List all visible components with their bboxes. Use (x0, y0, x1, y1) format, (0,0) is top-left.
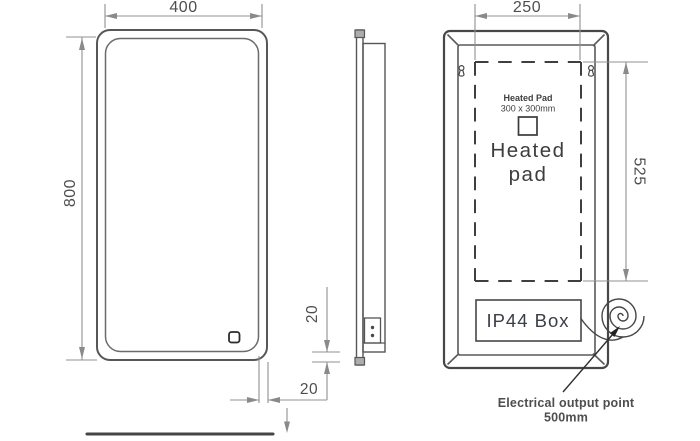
keyhole-hanger-icon (459, 66, 464, 77)
back-width-label: 250 (513, 0, 541, 16)
arrowhead-icon (268, 397, 280, 403)
front-view (97, 30, 267, 360)
arrowhead-icon (79, 347, 85, 359)
side-junction-box (365, 318, 381, 343)
side-bottom-cap (355, 358, 365, 366)
arrowhead-icon (247, 397, 259, 403)
pad-note-size: 300 x 300mm (501, 104, 556, 114)
screw-icon (371, 334, 374, 337)
arrowhead-icon (623, 269, 629, 281)
side-top-cap (355, 30, 365, 38)
arrowhead-icon (568, 13, 580, 19)
front-height-label: 800 (62, 179, 79, 207)
front-width-label: 400 (169, 0, 197, 16)
drawing-canvas: 400 800 20 20 (0, 0, 700, 441)
arrowhead-icon (324, 362, 330, 374)
leader-line (563, 334, 613, 392)
electrical-note-line2: 500mm (544, 411, 588, 425)
inset-bottom-label: 20 (300, 381, 318, 398)
electrical-note-line1: Electrical output point (498, 396, 635, 410)
arrowhead-icon (324, 340, 330, 352)
arrowhead-icon (250, 13, 262, 19)
front-led-border (106, 39, 259, 352)
heated-pad-word-top: Heated (490, 139, 565, 162)
screw-icon (371, 326, 374, 329)
arrowhead-icon (105, 13, 117, 19)
side-mirror-panel (357, 30, 364, 365)
inset-right-label: 20 (304, 305, 321, 323)
back-inner-frame (458, 45, 595, 355)
corner-chamfer (593, 35, 605, 47)
pad-sensor-square (519, 117, 538, 135)
touch-sensor-icon (229, 332, 240, 343)
arrowhead-icon (79, 38, 85, 50)
side-back-cabinet (363, 44, 385, 353)
pad-note-title: Heated Pad (503, 93, 552, 103)
bottom-pointer (87, 408, 290, 434)
corner-chamfer (448, 35, 460, 47)
corner-chamfer (448, 354, 460, 365)
heated-pad-word-bottom: pad (509, 163, 548, 186)
ip44-box-label: IP44 Box (486, 310, 569, 331)
side-view (355, 30, 385, 365)
front-outer-frame (97, 30, 267, 360)
arrowhead-icon (284, 422, 290, 434)
pad-height-label: 525 (631, 157, 648, 185)
arrowhead-icon (623, 62, 629, 74)
arrowhead-icon (475, 13, 487, 19)
keyhole-hanger-icon (589, 66, 594, 77)
mirror-technical-drawing: 400 800 20 20 (0, 0, 700, 441)
